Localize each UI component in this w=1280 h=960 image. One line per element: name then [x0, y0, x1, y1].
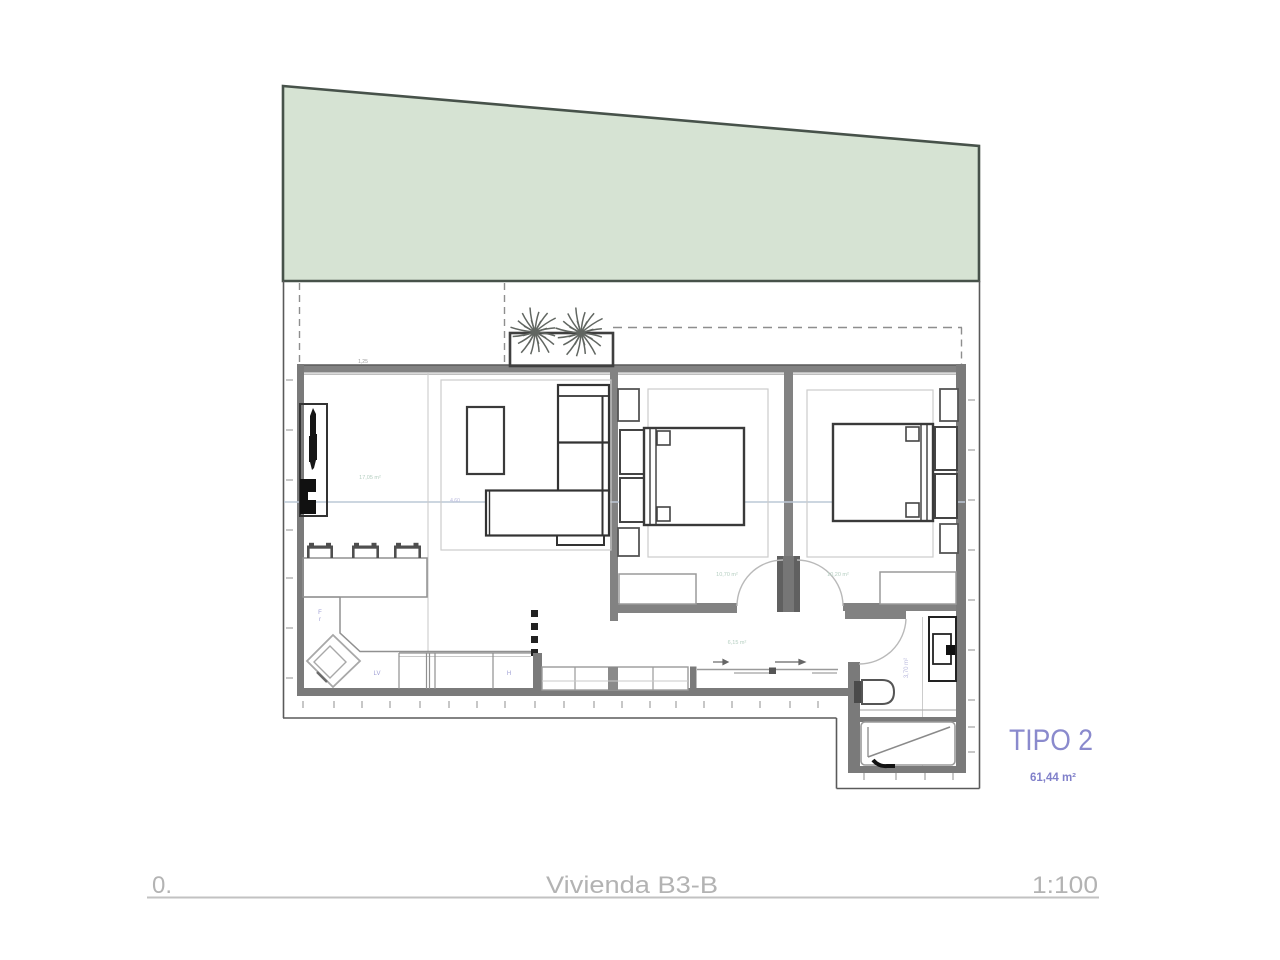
svg-text:Vivienda B3-B: Vivienda B3-B — [546, 872, 718, 899]
svg-text:3,70 m²: 3,70 m² — [904, 658, 910, 678]
svg-text:10,20 m²: 10,20 m² — [827, 572, 849, 578]
svg-text:F: F — [318, 610, 322, 616]
svg-text:0.: 0. — [152, 872, 172, 899]
svg-text:1:100: 1:100 — [1032, 872, 1098, 899]
svg-text:TIPO 2: TIPO 2 — [1009, 724, 1093, 757]
svg-text:4,60: 4,60 — [450, 498, 460, 504]
svg-text:r: r — [319, 617, 321, 623]
svg-text:10,70 m²: 10,70 m² — [716, 572, 738, 578]
svg-text:H: H — [507, 671, 511, 677]
svg-text:61,44 m²: 61,44 m² — [1030, 772, 1076, 784]
svg-text:17,05 m²: 17,05 m² — [359, 475, 381, 481]
svg-text:LV: LV — [374, 671, 381, 677]
svg-text:6,15 m²: 6,15 m² — [728, 640, 747, 646]
svg-text:1,25: 1,25 — [358, 359, 368, 365]
